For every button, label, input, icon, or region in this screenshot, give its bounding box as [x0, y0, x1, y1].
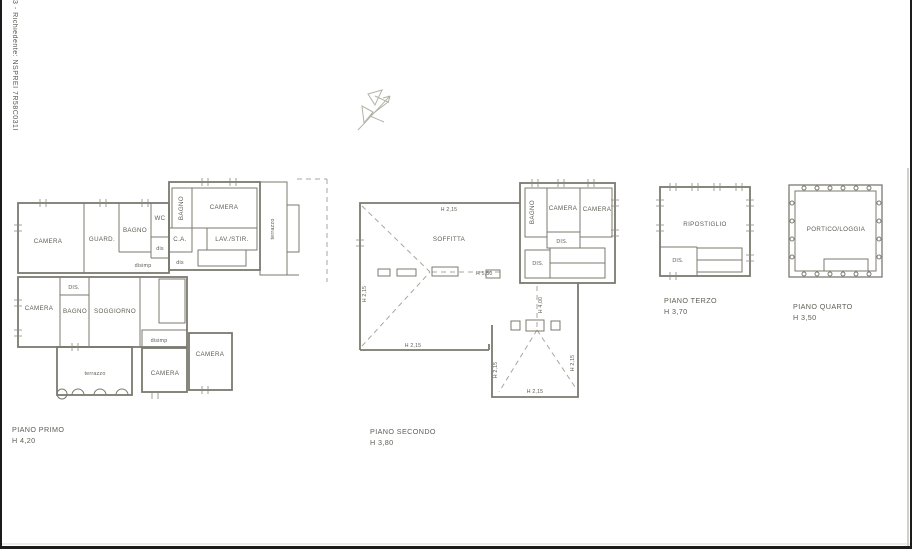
floor-caption: PIANO QUARTO H 3,50 — [793, 302, 853, 322]
room-label-wc: WC — [154, 215, 165, 222]
floor-plan-piano-terzo: RIPOSTIGLIO DIS. PIANO TERZO H 3,70 — [656, 183, 754, 316]
staircase — [697, 248, 742, 272]
room-label-camera-2: CAMERA — [583, 206, 612, 213]
drawing-sheet: 3 - Richiedente: NSPREI 7R58C031I — [0, 0, 912, 549]
room-label-dis-c: DIS. — [68, 285, 79, 291]
roof-ridge-dashed-lines — [362, 206, 577, 392]
measure-h-right: H 2,15 — [570, 355, 576, 371]
room-label-camera-1: CAMERA — [549, 205, 578, 212]
staircase — [159, 250, 246, 323]
measure-h-top: H 2,15 — [441, 207, 457, 213]
room-label-portico: PORTICO/LOGGIA — [807, 226, 866, 233]
floor-caption-height: H 3,80 — [370, 438, 394, 447]
measure-h-bottom: H 2,15 — [405, 343, 421, 349]
floor-caption-height: H 4,20 — [12, 436, 36, 445]
measure-h-ridge: H 5,50 — [476, 271, 492, 277]
room-label-camera-s2: CAMERA — [196, 351, 225, 358]
floor-caption-height: H 3,50 — [793, 313, 817, 322]
room-label-bagno-w: BAGNO — [63, 308, 87, 315]
room-label-camera-ne: CAMERA — [210, 204, 239, 211]
room-labels: RIPOSTIGLIO DIS. — [672, 221, 726, 264]
walls — [360, 183, 615, 397]
room-label-soggiorno: SOGGIORNO — [94, 308, 136, 315]
measure-h-ext-bottom: H 2,15 — [527, 389, 543, 395]
room-label-dis: DIS. — [672, 258, 683, 264]
measure-h-left: H 2,15 — [362, 286, 368, 302]
window-ticks — [656, 183, 754, 280]
floor-caption: PIANO TERZO H 3,70 — [664, 296, 717, 316]
floor-plan-piano-primo: CAMERA GUARD. BAGNO WC dis C.A. dis disi… — [12, 178, 327, 445]
page-edge-lines — [2, 168, 912, 547]
measure-h-center: H 4,00 — [538, 297, 544, 313]
room-label-bagno-n: BAGNO — [123, 227, 147, 234]
room-label-lav-stir: LAV./STIR. — [215, 236, 248, 243]
room-label-dis-e: dis — [176, 260, 184, 266]
room-label-disimp-n: disimp — [135, 263, 152, 269]
room-label-dis-n: dis — [156, 246, 164, 252]
room-label-ca: C.A. — [173, 236, 186, 243]
measure-h-ext-left: H 2,15 — [493, 362, 499, 378]
room-label-dis-1: DIS. — [556, 239, 567, 245]
room-label-camera-s1: CAMERA — [151, 370, 180, 377]
room-label-ripostiglio: RIPOSTIGLIO — [683, 221, 726, 228]
floorplan-drawing: CAMERA GUARD. BAGNO WC dis C.A. dis disi… — [2, 0, 912, 549]
room-label-guardaroba: GUARD. — [89, 236, 115, 243]
height-measure-labels: H 2,15 H 5,50 H 2,15 H 2,15 H 4,00 H 2,1… — [362, 207, 576, 395]
room-label-soffitta: SOFFITTA — [433, 236, 466, 243]
floor-plan-piano-quarto: PORTICO/LOGGIA PIANO QUARTO H 3,50 — [789, 185, 882, 322]
floor-caption-name: PIANO QUARTO — [793, 302, 853, 311]
room-label-camera-nw: CAMERA — [34, 238, 63, 245]
floor-caption: PIANO SECONDO H 3,80 — [370, 427, 436, 447]
north-arrow-icon — [358, 90, 390, 130]
staircase — [550, 248, 605, 278]
floor-caption-height: H 3,70 — [664, 307, 688, 316]
room-label-bagno-e: BAGNO — [178, 196, 185, 220]
window-ticks — [14, 178, 236, 399]
staircase — [824, 259, 868, 271]
boundary-dashed-line — [297, 179, 327, 282]
room-label-terrazzo-e: terrazzo — [270, 218, 276, 239]
room-labels: CAMERA GUARD. BAGNO WC dis C.A. dis disi… — [25, 196, 276, 377]
room-labels: SOFFITTA BAGNO CAMERA CAMERA DIS. DIS. — [433, 200, 612, 267]
room-label-disimp-s: disimp — [151, 338, 168, 344]
room-labels: PORTICO/LOGGIA — [807, 226, 866, 233]
room-label-camera-w: CAMERA — [25, 305, 54, 312]
floor-caption-name: PIANO TERZO — [664, 296, 717, 305]
floor-caption-name: PIANO PRIMO — [12, 425, 64, 434]
room-label-terrazzo-s: terrazzo — [84, 371, 105, 377]
floor-plan-piano-secondo: SOFFITTA BAGNO CAMERA CAMERA DIS. DIS. H… — [356, 179, 619, 447]
floor-caption: PIANO PRIMO H 4,20 — [12, 425, 64, 445]
room-label-dis-2: DIS. — [532, 261, 543, 267]
room-label-bagno: BAGNO — [529, 200, 536, 224]
floor-caption-name: PIANO SECONDO — [370, 427, 436, 436]
